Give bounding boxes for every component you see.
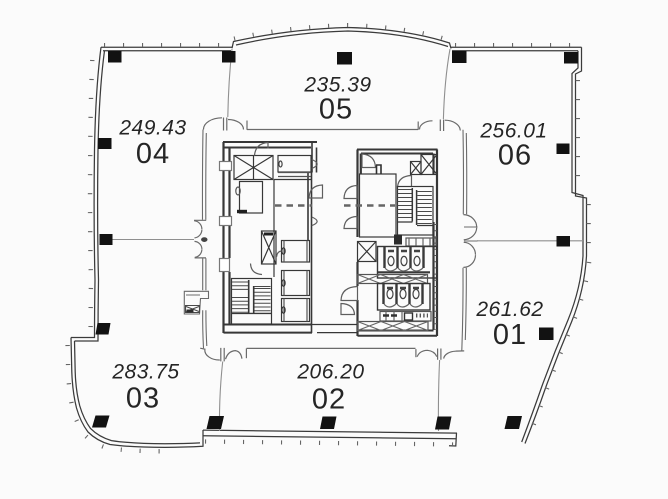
svg-text:01: 01 [493,319,527,351]
svg-text:261.62: 261.62 [475,298,543,321]
svg-text:04: 04 [136,138,170,170]
svg-text:249.43: 249.43 [118,117,186,140]
svg-text:03: 03 [126,383,160,415]
svg-text:283.75: 283.75 [111,361,179,384]
svg-text:06: 06 [498,140,532,172]
svg-text:206.20: 206.20 [296,361,364,384]
svg-text:02: 02 [312,384,346,416]
svg-text:05: 05 [319,94,353,126]
